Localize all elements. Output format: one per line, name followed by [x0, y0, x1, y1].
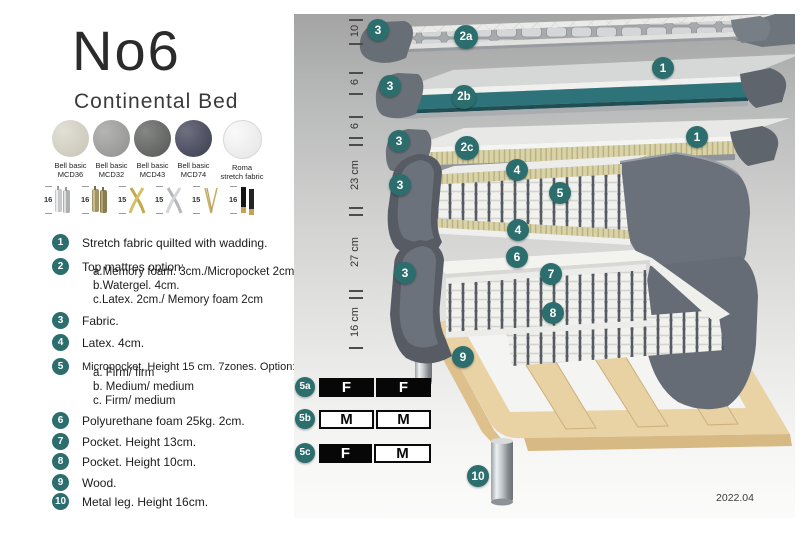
fabric-swatch-circle [93, 120, 130, 157]
list-item: 6 Polyurethane foam 25kg. 2cm. [52, 412, 245, 429]
list-subitem: c. Firm/ medium [93, 395, 175, 407]
scale-tick [349, 207, 363, 209]
firmness-cell: M [319, 410, 374, 429]
list-item: 3 Fabric. [52, 312, 119, 329]
leg-height: 16 [44, 189, 52, 211]
firmness-badge: 5b [295, 409, 315, 429]
swatch-name: Bell basic [95, 161, 127, 170]
leg-cylinder-brass-icon [90, 184, 110, 216]
list-subitem: a.Memory foam. 3cm./Micropocket 2cm [93, 266, 294, 278]
fabric-swatches: Bell basicMCD36 Bell basicMCD32 Bell bas… [50, 120, 270, 181]
fabric-swatch: Romastretch fabric [214, 120, 270, 181]
callout-badge: 1 [686, 126, 708, 148]
list-item: 10 Metal leg. Height 16cm. [52, 493, 208, 510]
callout-badge: 3 [388, 130, 410, 152]
callout-badge: 2b [452, 85, 476, 109]
callout-badge: 8 [542, 302, 564, 324]
list-subitem: b.Watergel. 4cm. [93, 280, 180, 292]
leg-option: 15 [118, 184, 155, 216]
leg-option: 15 [155, 184, 192, 216]
leg-height: 15 [118, 189, 126, 211]
firmness-badge: 5a [295, 377, 315, 397]
callout-badge: 4 [507, 219, 529, 241]
list-subitem: a. Firm/ firm [93, 367, 154, 379]
version-label: 2022.04 [694, 492, 754, 504]
fabric-swatch-circle [134, 120, 171, 157]
callout-badge: 6 [506, 246, 528, 268]
leg-block-black-icon [238, 184, 258, 216]
leg-height: 15 [192, 189, 200, 211]
swatch-code: MCD32 [99, 170, 124, 179]
list-item-number: 7 [52, 433, 69, 450]
list-item-text: Metal leg. Height 16cm. [82, 495, 208, 509]
list-item-text: Fabric. [82, 314, 119, 328]
callout-badge: 2a [454, 25, 478, 49]
firmness-cell: F [376, 378, 431, 397]
list-item-number: 8 [52, 453, 69, 470]
list-subitem: b. Medium/ medium [93, 381, 194, 393]
leg-height: 16 [229, 189, 237, 211]
firmness-row: M M [319, 410, 431, 429]
scale-label: 23 cm [349, 145, 363, 205]
firmness-badge: 5c [295, 443, 315, 463]
fabric-swatch: Bell basicMCD43 [132, 120, 173, 181]
scale-label: 27 cm [349, 222, 363, 282]
callout-badge: 3 [379, 75, 401, 97]
list-item-text: Wood. [82, 476, 116, 490]
list-item-number: 10 [52, 493, 69, 510]
leg-options: 16 16 15 15 [44, 184, 266, 216]
list-item-text: Latex. 4cm. [82, 336, 144, 350]
firmness-cell: F [319, 444, 372, 463]
fabric-swatch-circle [52, 120, 89, 157]
list-item: 1 Stretch fabric quilted with wadding. [52, 234, 267, 251]
list-item: 9 Wood. [52, 474, 116, 491]
leg-option: 16 [229, 184, 266, 216]
product-subtitle: Continental Bed [74, 90, 238, 114]
list-item: 4 Latex. 4cm. [52, 334, 144, 351]
leg-option: 16 [44, 184, 81, 216]
leg-option: 15 [192, 184, 229, 216]
callout-badge: 2c [455, 136, 479, 160]
list-item-number: 1 [52, 234, 69, 251]
scale-label: 16 cm [349, 292, 363, 352]
callout-badge: 5 [549, 182, 571, 204]
leg-height: 15 [155, 189, 163, 211]
firmness-cell: M [376, 410, 431, 429]
callout-badge: 3 [367, 19, 389, 41]
leg-cross-gold-icon [127, 184, 147, 216]
fabric-swatch: Bell basicMCD74 [173, 120, 214, 181]
firmness-row: F M [319, 444, 431, 463]
list-item-number: 4 [52, 334, 69, 351]
firmness-cell: F [319, 378, 374, 397]
fabric-swatch-circle [223, 120, 262, 159]
layer-topper [360, 14, 795, 63]
swatch-name: Bell basic [136, 161, 168, 170]
page: No6 Continental Bed Bell basicMCD36 Bell… [0, 0, 800, 533]
callout-badge: 3 [389, 174, 411, 196]
firmness-row: F F [319, 378, 431, 397]
firmness-cell: M [374, 444, 431, 463]
list-item: 8 Pocket. Height 10cm. [52, 453, 196, 470]
callout-badge: 1 [652, 57, 674, 79]
list-item: 5 Micropocket. Height 15 cm. 7zones. Opt… [52, 358, 295, 375]
leg-cross-silver-icon [164, 184, 184, 216]
swatch-name: Roma [232, 163, 252, 172]
callout-badge: 3 [394, 262, 416, 284]
leg-cylinder-chrome-icon [53, 184, 73, 216]
list-item-number: 5 [52, 358, 69, 375]
layer-watergel [376, 54, 795, 119]
swatch-code: MCD36 [58, 170, 83, 179]
list-item-text: Stretch fabric quilted with wadding. [82, 236, 267, 250]
fabric-swatch: Bell basicMCD36 [50, 120, 91, 181]
scale-tick [349, 214, 363, 216]
list-item-text: Pocket. Height 13cm. [82, 435, 196, 449]
callout-badge: 10 [467, 465, 489, 487]
list-item-number: 9 [52, 474, 69, 491]
callout-badge: 7 [540, 263, 562, 285]
diagram-panel: 10 6 6 23 cm 27 cm 16 cm 3 2a 1 3 2b 1 3… [294, 14, 795, 518]
list-subitem: c.Latex. 2cm./ Memory foam 2cm [93, 294, 263, 306]
swatch-name: Bell basic [177, 161, 209, 170]
callout-badge: 4 [506, 159, 528, 181]
leg-hairpin-icon [201, 184, 221, 216]
fabric-swatch-circle [175, 120, 212, 157]
swatch-code: stretch fabric [221, 172, 264, 181]
list-item-number: 2 [52, 258, 69, 275]
product-title: No6 [72, 18, 181, 83]
swatch-name: Bell basic [54, 161, 86, 170]
list-item-number: 6 [52, 412, 69, 429]
leg-height: 16 [81, 189, 89, 211]
list-item-text: Polyurethane foam 25kg. 2cm. [82, 414, 245, 428]
swatch-code: MCD74 [181, 170, 206, 179]
list-item-text: Pocket. Height 10cm. [82, 455, 196, 469]
metal-leg-front [491, 438, 513, 506]
fabric-swatch: Bell basicMCD32 [91, 120, 132, 181]
list-item: 7 Pocket. Height 13cm. [52, 433, 196, 450]
callout-badge: 9 [452, 346, 474, 368]
leg-option: 16 [81, 184, 118, 216]
list-item-number: 3 [52, 312, 69, 329]
swatch-code: MCD43 [140, 170, 165, 179]
